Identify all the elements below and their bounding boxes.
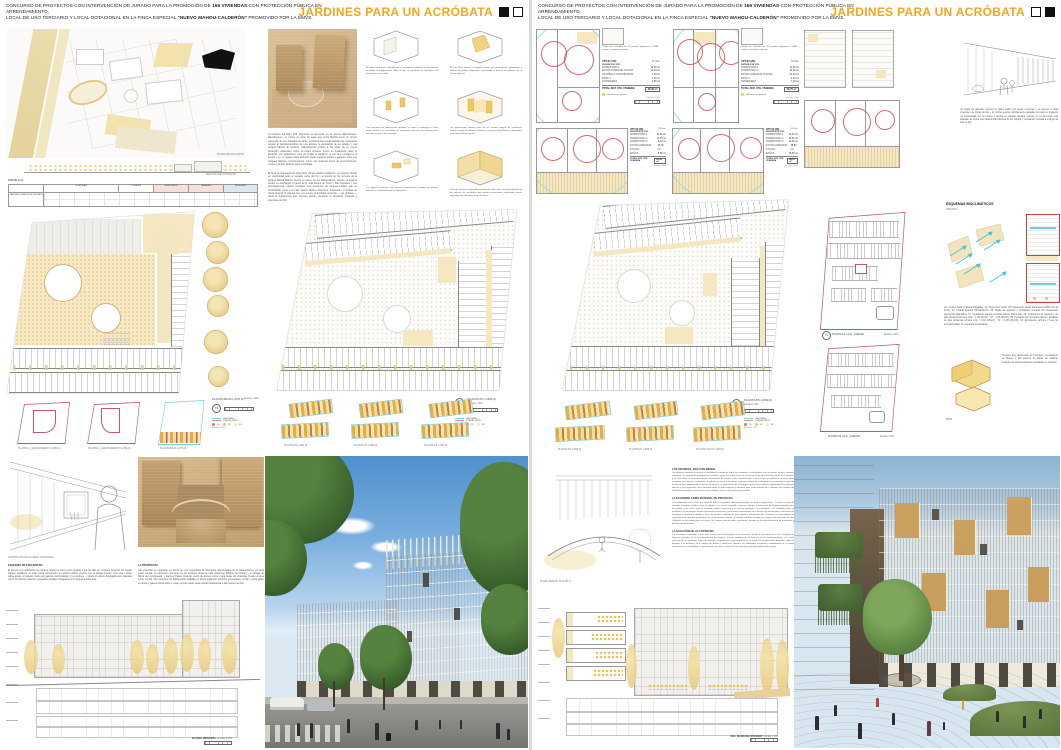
plan-p3-chip bbox=[352, 402, 404, 442]
mini-plan-accent bbox=[808, 34, 818, 42]
caption-line2-a: LOCAL DE USO TERCIARIO Y LOCAL DOTACIONA… bbox=[6, 15, 177, 20]
patio-accent-2 bbox=[665, 327, 694, 344]
street-tree bbox=[207, 295, 229, 317]
level-tick bbox=[6, 624, 18, 625]
plan-equip-2-label: PLANTA 2 _EQUIPAMIENTO (+586,0) bbox=[18, 447, 61, 450]
bioclimatic-wall-section-lower bbox=[1026, 263, 1060, 303]
person-figure bbox=[310, 723, 314, 738]
panel-right: CONCURSO DE PROYECTOS CON INTERVENCIÓN D… bbox=[532, 0, 1061, 750]
tree-circle-small bbox=[91, 303, 121, 333]
section-tree bbox=[626, 644, 637, 688]
corner-accent bbox=[277, 225, 302, 243]
stairs-hatch bbox=[103, 332, 130, 345]
site-section-label: SECCIÓN DE SITUACIÓN bbox=[206, 173, 236, 176]
street-render bbox=[265, 456, 528, 748]
project-title: JARDINES PARA UN ACRÓBATA bbox=[830, 5, 1025, 19]
room-label: TENDEDERO bbox=[741, 80, 756, 84]
room-label: TENDEDERO bbox=[602, 80, 617, 84]
tree-outline bbox=[327, 276, 363, 312]
level-tick bbox=[538, 636, 550, 637]
level-tick bbox=[6, 610, 18, 611]
diagram-caption-4: Las plazas-patio forman parte de un sist… bbox=[450, 127, 522, 136]
text-propuesta: LA PROPUESTA Las viviendas se organizan … bbox=[138, 564, 264, 585]
slab-band bbox=[1026, 256, 1058, 261]
sheet-indicator-2-off bbox=[513, 7, 523, 17]
wall bbox=[835, 101, 836, 146]
plan-legend: GALERÍAS PLAZAS-PATIO 1D 2D 3D Escala 1:… bbox=[212, 418, 260, 429]
suitcase bbox=[386, 733, 391, 741]
total-value: 46,35 m² bbox=[645, 87, 660, 92]
caption-line2-b: “NUEVO MAHOU-CALDERÓN” bbox=[177, 15, 247, 20]
person-with-suitcase bbox=[375, 723, 379, 740]
unit-strip-east bbox=[171, 254, 193, 347]
room-value: 4,55 m² bbox=[652, 80, 660, 84]
ramp bbox=[869, 411, 885, 423]
text-encuentro-body: El acceso a la edificación se produce de… bbox=[8, 569, 132, 582]
stair-core bbox=[855, 264, 867, 274]
plan-p6-label: PLANTA P6 (+596,0) bbox=[558, 448, 581, 451]
elevation-tree bbox=[180, 634, 194, 672]
gallery-band-v bbox=[486, 250, 492, 352]
elevation-tree bbox=[164, 638, 178, 674]
plaza-sketch bbox=[540, 460, 668, 578]
level-tick bbox=[6, 638, 18, 639]
section-tree bbox=[552, 618, 565, 658]
patio-floor bbox=[566, 666, 626, 681]
gallery-accents bbox=[570, 366, 789, 371]
parking-s2-scale: Escala 1:600 bbox=[880, 435, 894, 438]
plaza-sketch-label: PLAZA JARDÍN. PLANTA 1ª bbox=[540, 580, 571, 583]
scale-bar bbox=[204, 741, 232, 745]
table-group-locales: LOCALES bbox=[119, 185, 154, 192]
unit-count: 27 Uds. bbox=[652, 60, 660, 63]
airflow-curve bbox=[536, 29, 600, 123]
location-label: Ubicación en plantas bbox=[746, 94, 766, 96]
person-figure bbox=[496, 723, 500, 739]
patio-edge bbox=[567, 613, 573, 626]
diagram-caption-3: Con conjuntos de plazas-patio apiladas s… bbox=[366, 127, 438, 136]
garage-row bbox=[36, 716, 238, 727]
pmr-note-1: *Todas las viviendas de 1D pueden adapta… bbox=[602, 46, 658, 52]
diagram-caption-1: El orden volumétrico definido por la nor… bbox=[366, 67, 438, 76]
axon-diagram-patios bbox=[366, 89, 422, 125]
street-tree-front bbox=[360, 625, 413, 689]
memoria-texts: LOS SISTEMAS, MÁS CON MENOS Las galerías… bbox=[672, 468, 794, 549]
total-value: 88,70 m² bbox=[787, 158, 798, 164]
total-label: TOTAL SUP. ÚTIL VIVIENDA bbox=[766, 158, 787, 164]
plan-first-label: PLANTA P1 (+581,0) bbox=[468, 397, 496, 401]
level-tick bbox=[538, 608, 550, 609]
bioclimatic-wall-section-upper bbox=[1026, 214, 1060, 256]
plan-p5 bbox=[560, 200, 798, 392]
diagram-caption-2: El área libre interior se propone como u… bbox=[450, 67, 522, 76]
level-tick bbox=[538, 682, 550, 683]
airflow-line bbox=[1030, 283, 1056, 285]
caption-line1-b: 166 VIVIENDAS bbox=[744, 3, 779, 8]
legend-pink-line bbox=[212, 420, 221, 421]
window bbox=[423, 573, 429, 587]
garden-courtyard bbox=[15, 254, 155, 345]
total-label: TOTAL SUP. ÚTIL VIVIENDA bbox=[602, 87, 635, 92]
plan-ground-body bbox=[5, 210, 200, 395]
table-cells bbox=[44, 193, 257, 206]
gallery-band-v bbox=[760, 246, 765, 350]
legend-3d: 3D bbox=[482, 424, 485, 426]
neighbor-slab bbox=[28, 219, 141, 254]
tipo-axon bbox=[946, 354, 996, 416]
plan-p7-chip bbox=[627, 404, 679, 446]
street-tree bbox=[203, 267, 228, 292]
unit-plan-2d bbox=[673, 29, 739, 123]
intro-paragraph-1: A principios del Siglo XVII, Francisco d… bbox=[268, 133, 357, 166]
legend-scale: Escala 1:750 bbox=[744, 427, 798, 429]
terrace-plants bbox=[708, 684, 748, 690]
patio-floor bbox=[566, 648, 626, 663]
plan-p2-chip bbox=[282, 402, 334, 442]
type-dot-1d bbox=[212, 423, 215, 426]
model-photo-courtyard bbox=[138, 457, 264, 547]
plan-p5-body bbox=[560, 200, 798, 392]
plan-baja-mini-label: PLANTA BAJA (+576,0) bbox=[160, 447, 186, 450]
room-value: 7,29 m² bbox=[791, 80, 799, 84]
chip-top-bar bbox=[359, 399, 402, 417]
mini-floor-plan bbox=[852, 30, 894, 88]
plan-p5-scale: Escala 1:300 bbox=[744, 403, 758, 406]
elevation-tree bbox=[24, 640, 38, 674]
tree-outline bbox=[617, 269, 651, 303]
legend-3d: 3D bbox=[771, 424, 774, 426]
gallery-accents bbox=[13, 365, 192, 370]
scale-bar bbox=[773, 100, 799, 104]
unit-count: 29 Uds. bbox=[658, 128, 666, 131]
unit-plan-3d bbox=[536, 128, 628, 194]
person-figure bbox=[297, 723, 300, 736]
unit-plan-3d-c bbox=[804, 100, 900, 168]
unit-plan-3d-b bbox=[672, 128, 764, 194]
gallery-sketch bbox=[960, 29, 1060, 105]
access-sketch-label: VESTÍBULOS DE ACCESO, PORTALES bbox=[8, 556, 53, 559]
location-dot bbox=[741, 93, 744, 96]
caption-line1-a: CONCURSO DE PROYECTOS CON INTERVENCIÓN D… bbox=[538, 3, 744, 8]
text-cotidiano-body: Las viviendas responden a esta idea esen… bbox=[672, 534, 794, 549]
parking-s1-scale: Escala 1:600 bbox=[884, 333, 898, 336]
model-photo bbox=[268, 29, 357, 128]
level-tick bbox=[538, 650, 550, 651]
plan-ground-label: PLANTA BAJA (+576,0) bbox=[212, 397, 244, 401]
total-label: TOTAL SUP. ÚTIL VIVIENDA bbox=[630, 158, 654, 164]
crosswalk bbox=[265, 725, 344, 743]
unit-strip-row2 bbox=[9, 372, 194, 393]
plan-p3-label: PLANTA P3 (+587,0) bbox=[354, 444, 377, 447]
total-value: 58,70 m² bbox=[784, 87, 799, 92]
room-label: ESTAR-COMEDOR-COCINA bbox=[766, 144, 791, 151]
plinth-row bbox=[36, 688, 238, 701]
parking-stalls bbox=[827, 243, 901, 259]
unit-strip-row2 bbox=[277, 370, 516, 391]
room-label: ESTAR-COMEDOR-COCINA bbox=[630, 144, 658, 151]
furniture-circle bbox=[811, 109, 835, 133]
chip-top-bar bbox=[429, 399, 472, 417]
parking-stalls bbox=[831, 395, 880, 408]
legend-1d: 1D bbox=[217, 424, 220, 426]
unit-table-3d-b: VPT-04 (3D)31 Uds. SUPERFICIE ÚTIL DORMI… bbox=[766, 128, 798, 167]
pmr-mini-plan bbox=[741, 28, 763, 45]
unit-strip-east-in bbox=[458, 261, 488, 348]
street-tree-front bbox=[318, 643, 355, 690]
patio-plants bbox=[591, 633, 623, 641]
main-elevation: ALZADO PRINCIPAL Escala 1:300 bbox=[6, 604, 262, 746]
patio-accent-2 bbox=[403, 330, 433, 346]
plan-baja-mini-units bbox=[160, 432, 204, 444]
mini-plan-accent bbox=[876, 70, 886, 78]
bioclimatic-legend: 01. Control Solar (Celosía Plegable). 02… bbox=[944, 306, 1058, 326]
sun-dot bbox=[1033, 297, 1036, 300]
room-label: BAÑOS bbox=[630, 152, 638, 156]
axon-diagram-ventilation bbox=[450, 89, 506, 125]
caption-line2-b: “NUEVO MAHOU-CALDERÓN” bbox=[709, 15, 779, 20]
equip-curve bbox=[101, 408, 120, 433]
tree-canopy bbox=[481, 584, 528, 654]
concept-diagrams: El orden volumétrico definido por la nor… bbox=[364, 29, 526, 207]
unit-plan-1d bbox=[536, 29, 600, 123]
type-dot-3d bbox=[766, 423, 769, 426]
chip-bottom-bar bbox=[694, 426, 741, 441]
furniture-circle bbox=[843, 108, 871, 136]
legend-3d: 3D bbox=[239, 424, 242, 426]
corner-accent bbox=[565, 212, 586, 235]
text-encuentro-heading: ESQUEMA DE ENCUENTRO bbox=[8, 564, 132, 567]
park-block bbox=[153, 43, 193, 67]
pmr-note-2: *Todas las viviendas de 2D pueden adapta… bbox=[741, 46, 797, 52]
text-propuesta-body: Las viviendas se organizan en forma de «… bbox=[138, 569, 264, 586]
sheet-indicator-1-off bbox=[1031, 7, 1041, 17]
room-value: 38,60 m² bbox=[791, 144, 798, 151]
person-figure bbox=[460, 720, 462, 729]
text-cotidiano-heading: LA SOLUCIÓN DE LO COTIDIANO bbox=[672, 530, 794, 533]
unit-scale: Escala 1:100 bbox=[602, 97, 660, 99]
room-value: 25,40 m² bbox=[658, 144, 666, 151]
table-header-row: VIVIENDAS LOCALES TRASTEROS GARAJES RESU… bbox=[9, 185, 257, 193]
site-section-strip bbox=[24, 160, 250, 173]
patio-edge bbox=[567, 649, 573, 662]
table-group-viviendas: VIVIENDAS bbox=[44, 185, 119, 192]
person-figure bbox=[439, 720, 441, 729]
chip-top-bar bbox=[565, 401, 610, 419]
level-tick bbox=[6, 720, 18, 721]
sheet-indicator-1-on bbox=[499, 7, 509, 17]
elevation-tree bbox=[198, 638, 211, 672]
table-group-resumen: RESUMEN bbox=[224, 185, 257, 192]
unit-count: 31 Uds. bbox=[790, 128, 798, 131]
panel-left: CONCURSO DE PROYECTOS CON INTERVENCIÓN D… bbox=[0, 0, 529, 750]
car bbox=[307, 700, 335, 711]
patio-plants bbox=[595, 651, 623, 659]
section-building bbox=[194, 161, 222, 172]
sheet-indicator-2-on bbox=[1045, 7, 1055, 17]
parking-stalls bbox=[827, 374, 896, 388]
type-dot-3d bbox=[477, 423, 480, 426]
site-plan-label: PLANO DE SITUACIÓN bbox=[217, 153, 244, 156]
scale-bar bbox=[744, 409, 774, 413]
parking-s1-label: PLANTA S1 (-3,0) _GARAJE bbox=[832, 333, 864, 336]
pmr-mini-plan bbox=[602, 28, 624, 45]
parking-plan-s2 bbox=[820, 344, 902, 432]
legend-2d: 2D bbox=[228, 424, 231, 426]
airflow-line bbox=[1030, 227, 1056, 229]
level-tick bbox=[6, 652, 18, 653]
street-tree bbox=[204, 330, 228, 354]
tipo-note: Trastero tipo. Estructura de hormigón, c… bbox=[1002, 354, 1058, 364]
type-dot-2d bbox=[755, 423, 758, 426]
chip-bottom-bar bbox=[282, 423, 329, 438]
chip-bottom-bar bbox=[627, 426, 674, 441]
competition-board: CONCURSO DE PROYECTOS CON INTERVENCIÓN D… bbox=[0, 0, 1061, 750]
person-child bbox=[507, 729, 510, 740]
legend-patios: PLAZAS-PATIO bbox=[755, 420, 770, 422]
text-encuentro: ESQUEMA DE ENCUENTRO El acceso a la edif… bbox=[8, 564, 132, 582]
tree-outline bbox=[383, 305, 411, 333]
legend-patios: PLAZAS-PATIO bbox=[223, 420, 238, 422]
unit-table-2d: VPT-02 (2D)79 Uds. SUPERFICIE ÚTIL DORMI… bbox=[741, 60, 799, 104]
gallery-note: Un tejido de galerías conecta la plaza j… bbox=[960, 108, 1058, 125]
tree-circle-large bbox=[44, 264, 82, 302]
tipo-label: TIPO bbox=[946, 418, 952, 421]
unit-scale: Escala 1:100 bbox=[630, 165, 666, 167]
bioclimatic-site-diagram bbox=[942, 216, 1022, 298]
text-sistemas-body: Las galerías interiores permiten la vent… bbox=[672, 472, 794, 493]
person-figure bbox=[347, 719, 350, 733]
table-row-label: JARDINES PARA UN ACRÓBATA bbox=[9, 193, 44, 206]
scale-bar bbox=[224, 407, 254, 411]
legend-1d: 1D bbox=[749, 424, 752, 426]
elevation-tree bbox=[222, 634, 237, 674]
total-value: 62,30 m² bbox=[654, 158, 666, 164]
north-arrow-icon: N bbox=[212, 404, 221, 413]
section-tree bbox=[688, 646, 700, 690]
unit-scale: Escala 1:100 bbox=[766, 165, 798, 167]
sidewalk bbox=[265, 697, 528, 705]
unit-table-1d: VPT-01 (1D)27 Uds. SUPERFICIE ÚTIL DORMI… bbox=[602, 60, 660, 104]
plan-p5-label: PLANTA P5 (+593,0) bbox=[744, 398, 772, 402]
parking-plan-s1 bbox=[820, 212, 908, 330]
caption-line1-a: CONCURSO DE PROYECTOS CON INTERVENCIÓN D… bbox=[6, 3, 212, 8]
plan-ground-scale: Escala 1:300 bbox=[244, 397, 258, 400]
level-tick bbox=[538, 622, 550, 623]
text-economia-heading: LA ECONOMÍA COMO MATERIAL DE PROYECTO bbox=[672, 497, 794, 500]
person-figure bbox=[415, 720, 418, 730]
table-title: PARCELA (A) bbox=[8, 179, 23, 182]
table-group-trasteros: TRASTEROS bbox=[154, 185, 189, 192]
plan-atico-label: PLANTA ÁTICO (+602,0) bbox=[696, 448, 724, 451]
section-tree bbox=[760, 638, 774, 694]
section-building bbox=[174, 164, 192, 172]
ground-line bbox=[6, 679, 260, 686]
text-sistemas-heading: LOS SISTEMAS, MÁS CON MENOS bbox=[672, 468, 794, 471]
legend-cyan-line bbox=[212, 418, 221, 419]
type-dot-2d bbox=[223, 423, 226, 426]
axon-diagram-skin bbox=[450, 147, 506, 187]
courtyard-render bbox=[794, 456, 1060, 748]
plan-equip-1 bbox=[86, 402, 144, 444]
plan-baja-mini bbox=[157, 400, 207, 445]
garage-row bbox=[566, 712, 778, 724]
chip-top-bar bbox=[701, 401, 744, 419]
car bbox=[270, 697, 304, 710]
section-tree bbox=[776, 640, 789, 694]
ramp bbox=[876, 306, 894, 320]
text-propuesta-heading: LA PROPUESTA bbox=[138, 564, 264, 567]
plan-legend-c: GALERÍAS PLAZAS-PATIO 1D 2D 3D Escala 1:… bbox=[744, 418, 798, 429]
map-block bbox=[145, 79, 183, 105]
unit-strip-east-out bbox=[491, 246, 518, 355]
unit-strip-east-in bbox=[731, 258, 759, 346]
plan-p6-chip bbox=[556, 404, 611, 446]
room-value: 6,59 m² bbox=[658, 152, 666, 156]
caption-line2-a: LOCAL DE USO TERCIARIO Y LOCAL DOTACIONA… bbox=[538, 15, 709, 20]
map-block bbox=[76, 49, 104, 65]
plan-p4-label: PLANTA P4 (+590,0) bbox=[424, 444, 447, 447]
unit-strip-row2 bbox=[565, 370, 791, 391]
unit-scale: Escala 1:100 bbox=[741, 97, 799, 99]
table-body-row: JARDINES PARA UN ACRÓBATA bbox=[9, 193, 257, 206]
level-tick bbox=[6, 702, 18, 703]
tree-outline bbox=[669, 300, 695, 326]
elevation-tree bbox=[52, 644, 65, 674]
street-tree bbox=[202, 212, 228, 238]
plan-ground-floor bbox=[5, 210, 200, 395]
unit-strip-row1 bbox=[570, 346, 789, 368]
patio-floor bbox=[566, 612, 626, 627]
north-arrow-icon: N bbox=[822, 331, 831, 340]
table-group-garajes: GARAJES bbox=[189, 185, 224, 192]
chip-top-bar bbox=[634, 401, 677, 419]
plan-equip-1-label: PLANTA 1 _EQUIPAMIENTO (+581,0) bbox=[88, 447, 131, 450]
parking-stalls bbox=[829, 221, 899, 237]
location-label: Ubicación en plantas bbox=[607, 94, 627, 96]
access-sketch bbox=[8, 460, 132, 554]
chip-bottom-bar bbox=[556, 426, 605, 441]
patio-plants bbox=[593, 669, 623, 677]
unit-count: 79 Uds. bbox=[791, 60, 799, 63]
sunlight-overlay bbox=[794, 456, 1060, 748]
level-tick bbox=[538, 664, 550, 665]
intro-paragraph-2: El Área de Planeamiento Específico «Nuev… bbox=[268, 172, 357, 202]
gallery-accents bbox=[282, 365, 514, 370]
model-texture bbox=[138, 457, 264, 547]
sun-dot bbox=[1045, 297, 1048, 300]
roundabout bbox=[124, 89, 138, 103]
axon-diagram-collaborative bbox=[366, 149, 422, 185]
patio-floor bbox=[566, 630, 626, 645]
chip-bottom-bar bbox=[352, 423, 399, 438]
location-dot bbox=[602, 93, 605, 96]
airflow-curve bbox=[673, 29, 739, 123]
bioclimatic-season: VERANO bbox=[946, 208, 957, 211]
plinth-row bbox=[36, 701, 238, 714]
plinth-row bbox=[566, 698, 778, 712]
diagram-caption-6: Una piel exterior transpirable envuelve … bbox=[450, 189, 522, 198]
caption-line1-b: 166 VIVIENDAS bbox=[212, 3, 247, 8]
plan-atico-chip bbox=[694, 404, 746, 446]
plan-p7-label: PLANTA P7 (+599,0) bbox=[629, 448, 652, 451]
bioclimatic-title: ESQUEMAS BIOCLIMÁTICOS bbox=[946, 202, 993, 206]
legend-2d: 2D bbox=[760, 424, 763, 426]
cloud bbox=[352, 561, 374, 570]
unit-code: VPT-02 (2D) bbox=[741, 60, 755, 63]
patio-accent bbox=[703, 273, 717, 296]
patio-accent bbox=[438, 257, 456, 282]
plan-first-floor bbox=[272, 210, 524, 392]
